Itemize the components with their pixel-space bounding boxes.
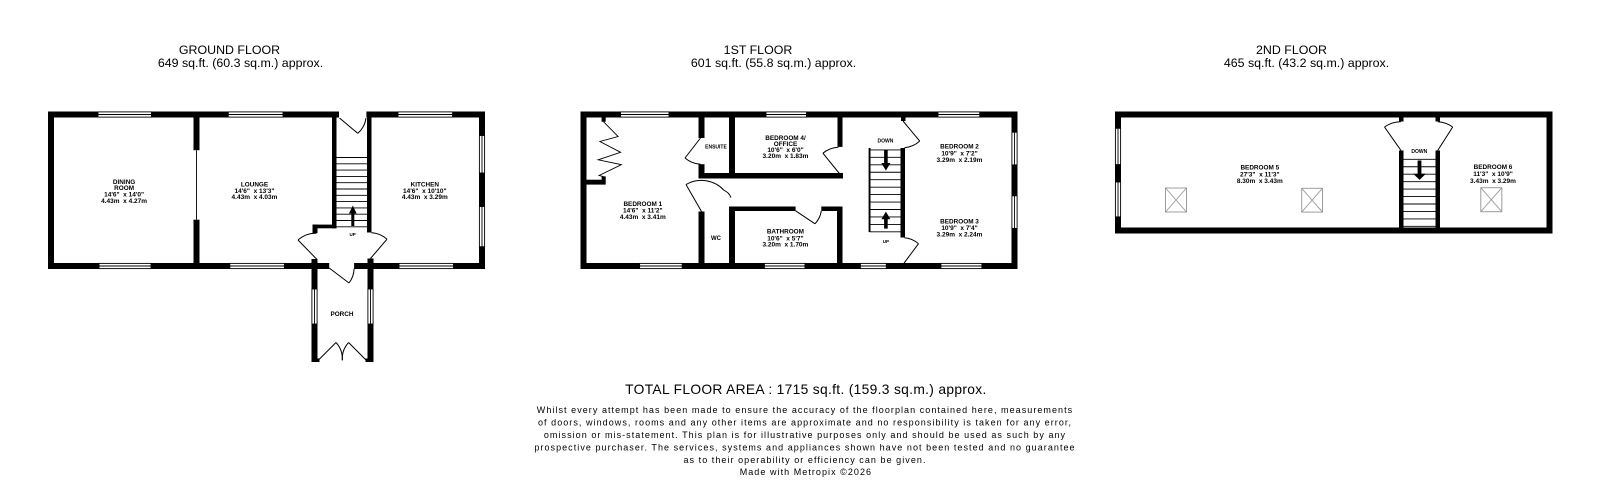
svg-text:649 sq.ft. (60.3 sq.m.) approx: 649 sq.ft. (60.3 sq.m.) approx. <box>158 56 323 70</box>
svg-text:3.29m x 2.24m: 3.29m x 2.24m <box>937 232 983 239</box>
svg-text:GROUND FLOOR: GROUND FLOOR <box>179 43 280 57</box>
svg-text:DOWN: DOWN <box>1411 149 1427 155</box>
svg-text:PORCH: PORCH <box>330 311 353 318</box>
svg-text:ENSUITE: ENSUITE <box>705 145 727 151</box>
svg-text:4.43m x 3.29m: 4.43m x 3.29m <box>402 194 448 201</box>
svg-text:DOWN: DOWN <box>877 138 893 144</box>
svg-text:TOTAL FLOOR AREA : 1715 sq.ft.: TOTAL FLOOR AREA : 1715 sq.ft. (159.3 sq… <box>625 382 986 397</box>
svg-text:Made with Metropix ©2026: Made with Metropix ©2026 <box>740 467 872 477</box>
svg-text:of doors, windows, rooms and a: of doors, windows, rooms and any other i… <box>538 418 1072 428</box>
svg-text:4.43m x 4.03m: 4.43m x 4.03m <box>232 194 278 201</box>
svg-text:as to their operability or eff: as to their operability or efficiency ca… <box>684 455 927 465</box>
svg-text:BEDROOM 6: BEDROOM 6 <box>1474 164 1513 171</box>
svg-text:465 sq.ft. (43.2 sq.m.) approx: 465 sq.ft. (43.2 sq.m.) approx. <box>1224 56 1389 70</box>
svg-text:UP: UP <box>883 239 889 244</box>
svg-text:UP: UP <box>349 232 355 237</box>
svg-text:Whilst every attempt has been: Whilst every attempt has been made to en… <box>537 405 1073 415</box>
svg-text:BEDROOM 2: BEDROOM 2 <box>940 143 979 150</box>
svg-text:3.43m x 3.29m: 3.43m x 3.29m <box>1470 178 1516 185</box>
svg-text:1ST FLOOR: 1ST FLOOR <box>724 43 793 57</box>
svg-text:WC: WC <box>711 236 722 242</box>
svg-text:4.43m x 4.27m: 4.43m x 4.27m <box>101 198 147 205</box>
svg-text:omission or mis-statement. Thi: omission or mis-statement. This plan is … <box>544 430 1066 440</box>
svg-text:3.29m x 2.19m: 3.29m x 2.19m <box>937 157 983 164</box>
svg-text:prospective purchaser. The ser: prospective purchaser. The services, sys… <box>534 442 1075 452</box>
svg-text:8.30m x 3.43m: 8.30m x 3.43m <box>1237 178 1283 185</box>
svg-text:3.20m x 1.70m: 3.20m x 1.70m <box>762 242 808 249</box>
svg-text:601 sq.ft. (55.8 sq.m.) approx: 601 sq.ft. (55.8 sq.m.) approx. <box>691 56 856 70</box>
svg-text:4.43m x 3.41m: 4.43m x 3.41m <box>620 214 666 221</box>
svg-text:2ND FLOOR: 2ND FLOOR <box>1256 43 1327 57</box>
svg-text:3.20m x 1.83m: 3.20m x 1.83m <box>763 153 809 160</box>
